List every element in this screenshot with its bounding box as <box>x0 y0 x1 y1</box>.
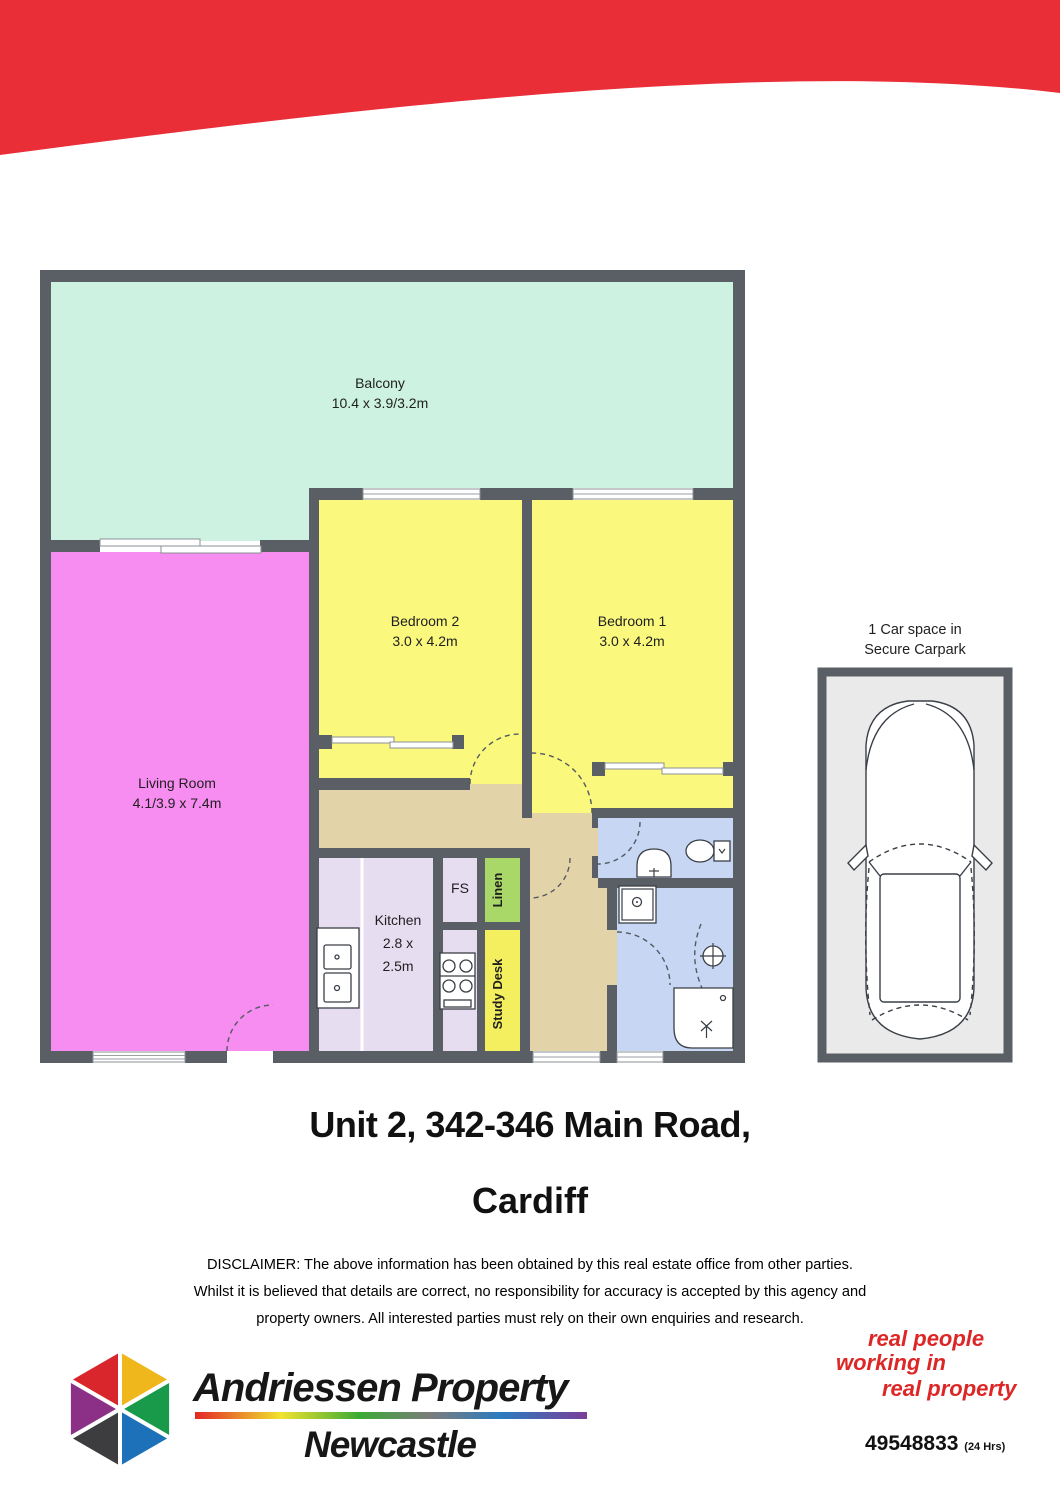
balcony-dims: 10.4 x 3.9/3.2m <box>332 395 429 411</box>
carport-labels: 1 Car space in Secure Carpark <box>864 622 966 658</box>
slogan-line-1: real people <box>868 1326 984 1352</box>
study-desk-label: Study Desk <box>490 958 505 1030</box>
address-line-2: Cardiff <box>0 1180 1060 1222</box>
kitchen-label: Kitchen <box>375 912 422 928</box>
carport-label-line1: 1 Car space in <box>868 622 962 638</box>
phone-digits: 49548833 <box>865 1432 958 1455</box>
living-room-dims: 4.1/3.9 x 7.4m <box>133 795 222 811</box>
bedroom1-label: Bedroom 1 <box>598 613 667 629</box>
carport: 1 Car space in Secure Carpark <box>822 622 1008 1058</box>
disclaimer: DISCLAIMER: The above information has be… <box>0 1252 1060 1333</box>
stove-icon <box>440 953 475 1009</box>
kitchen-sink-icon <box>317 928 359 1008</box>
kitchen-dims-1: 2.8 x <box>383 935 413 951</box>
red-curve-banner <box>0 0 1060 155</box>
slogan-line-3: real property <box>882 1376 1017 1402</box>
bedroom2-dims: 3.0 x 4.2m <box>392 633 457 649</box>
wc-basin-icon <box>637 849 671 877</box>
disclaimer-line-2: Whilst it is believed that details are c… <box>0 1279 1060 1306</box>
linen-label: Linen <box>490 873 505 908</box>
phone-note: (24 Hrs) <box>964 1441 1005 1453</box>
bedroom1-dims: 3.0 x 4.2m <box>599 633 664 649</box>
carport-label-line2: Secure Carpark <box>864 642 966 658</box>
fs-label: FS <box>451 880 469 896</box>
brand-city: Newcastle <box>195 1424 585 1466</box>
toilet-icon <box>686 840 730 862</box>
bedroom2-label: Bedroom 2 <box>391 613 460 629</box>
kitchen-dims-2: 2.5m <box>382 958 413 974</box>
slogan-line-2: working in <box>836 1350 946 1376</box>
address-line-1: Unit 2, 342-346 Main Road, <box>0 1104 1060 1146</box>
disclaimer-line-1: DISCLAIMER: The above information has be… <box>0 1252 1060 1279</box>
phone-number: 49548833 (24 Hrs) <box>865 1432 1005 1456</box>
floor-plan: Balcony 10.4 x 3.9/3.2m Bedroom 2 3.0 x … <box>40 270 745 1063</box>
brand-name: Andriessen Property <box>193 1366 593 1411</box>
balcony-label: Balcony <box>355 375 405 391</box>
flyer-page: Balcony 10.4 x 3.9/3.2m Bedroom 2 3.0 x … <box>0 0 1060 1500</box>
sliding-door <box>100 539 261 553</box>
rainbow-underline <box>195 1412 587 1419</box>
vanity-icon <box>619 886 656 923</box>
living-room-label: Living Room <box>138 775 216 791</box>
laundry-tub-icon <box>674 988 733 1048</box>
brand-hexagon-logo <box>69 1350 171 1468</box>
car-top-view-icon <box>848 701 992 1039</box>
